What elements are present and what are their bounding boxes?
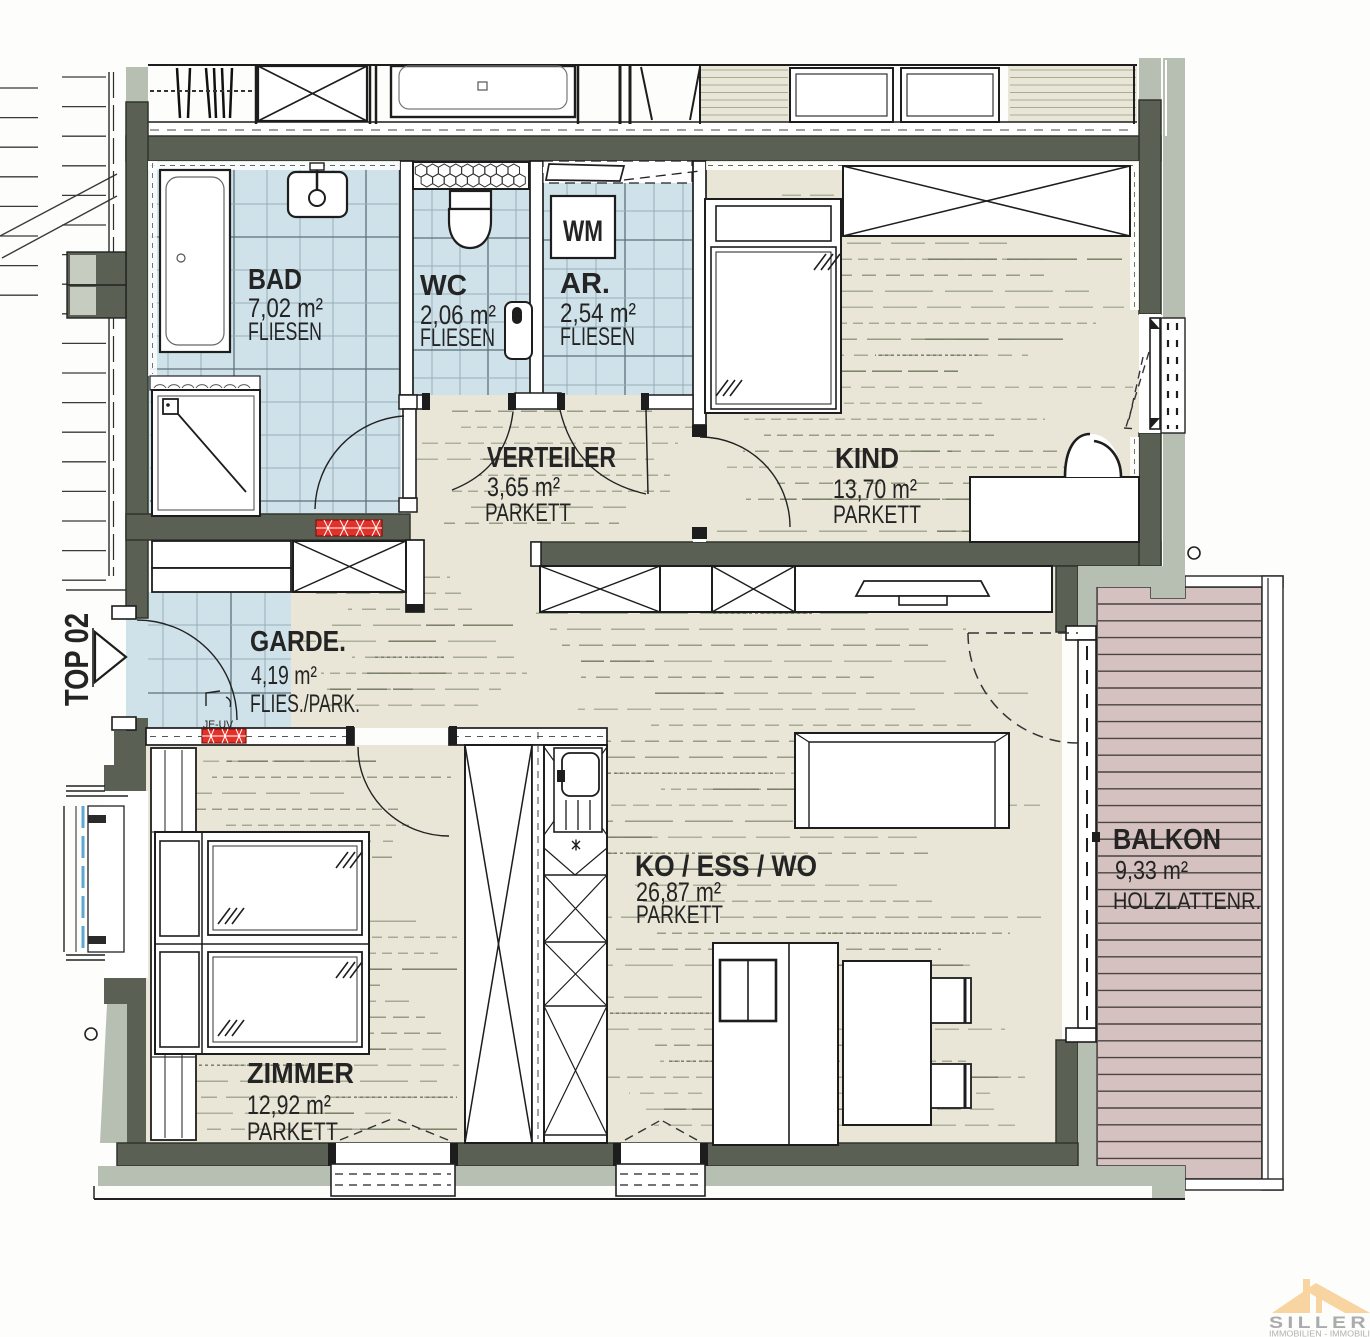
svg-text:4,19 m²: 4,19 m²	[251, 660, 317, 690]
svg-text:12,92 m²: 12,92 m²	[247, 1090, 331, 1120]
svg-text:HOLZLATTENR.: HOLZLATTENR.	[1113, 888, 1261, 915]
svg-text:ZIMMER: ZIMMER	[247, 1058, 354, 1090]
svg-text:9,33 m²: 9,33 m²	[1115, 855, 1188, 885]
svg-text:FLIESEN: FLIESEN	[248, 318, 322, 346]
svg-text:PARKETT: PARKETT	[247, 1118, 338, 1146]
svg-text:13,70 m²: 13,70 m²	[833, 474, 917, 504]
svg-text:PARKETT: PARKETT	[636, 901, 723, 929]
svg-text:FLIESEN: FLIESEN	[560, 323, 635, 351]
svg-text:PARKETT: PARKETT	[833, 501, 921, 529]
svg-text:FLIESEN: FLIESEN	[420, 324, 495, 352]
svg-text:FLIES./PARK.: FLIES./PARK.	[250, 690, 360, 718]
svg-text:TOP 02: TOP 02	[58, 613, 95, 706]
svg-text:IMMOBILIEN - IMMOBILI: IMMOBILIEN - IMMOBILI	[1269, 1330, 1370, 1337]
svg-text:VERTEILER: VERTEILER	[487, 442, 616, 474]
svg-text:BALKON: BALKON	[1113, 824, 1221, 856]
svg-text:AR.: AR.	[560, 268, 610, 300]
svg-text:WM: WM	[563, 215, 603, 248]
svg-text:BAD: BAD	[248, 264, 302, 296]
svg-text:3,65 m²: 3,65 m²	[487, 472, 560, 502]
svg-text:WC: WC	[420, 270, 467, 302]
svg-text:PARKETT: PARKETT	[485, 499, 571, 527]
svg-text:GARDE.: GARDE.	[250, 626, 346, 658]
svg-text:KIND: KIND	[835, 443, 899, 475]
